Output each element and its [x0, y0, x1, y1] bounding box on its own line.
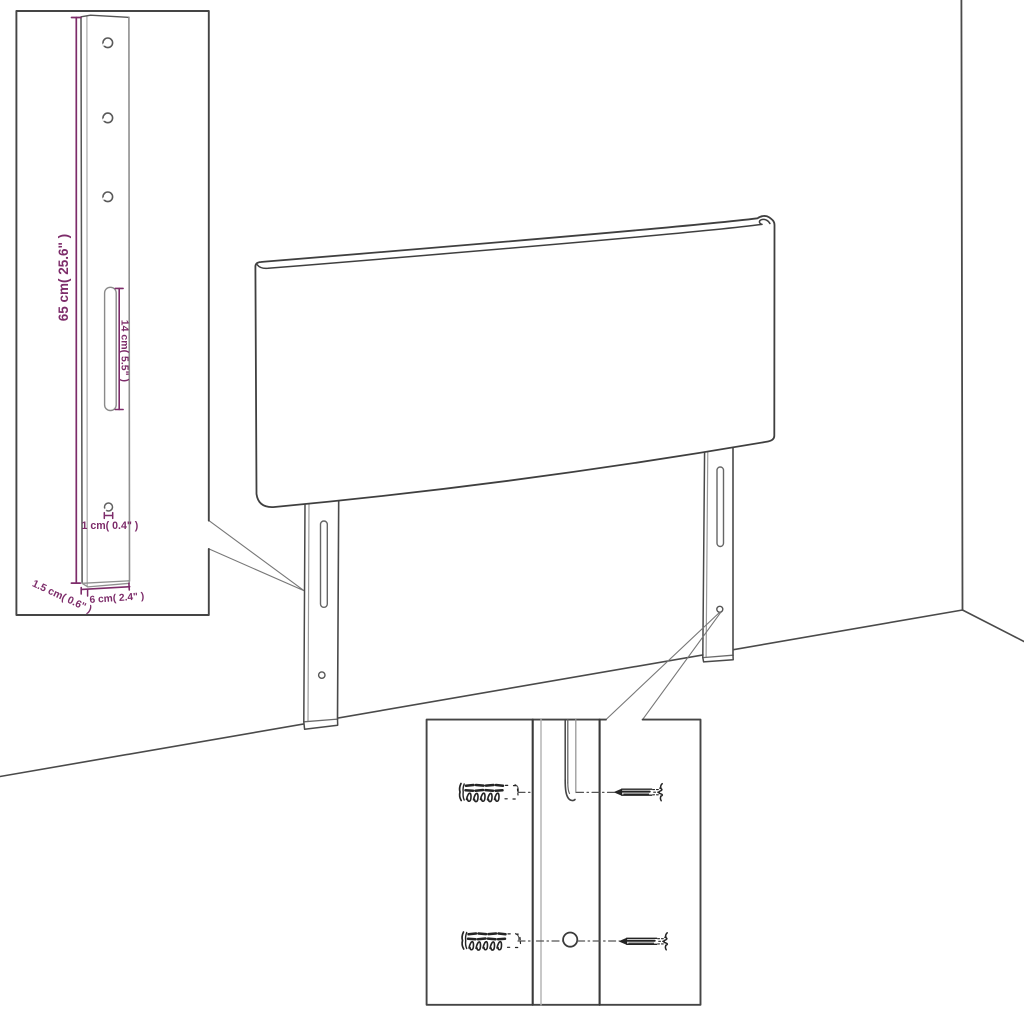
svg-text:1 cm( 0.4" ): 1 cm( 0.4" ): [82, 520, 139, 532]
svg-text:65 cm( 25.6" ): 65 cm( 25.6" ): [56, 234, 71, 321]
svg-text:6 cm( 2.4" ): 6 cm( 2.4" ): [89, 591, 144, 606]
svg-text:14 cm( 5.5" ): 14 cm( 5.5" ): [119, 320, 131, 382]
